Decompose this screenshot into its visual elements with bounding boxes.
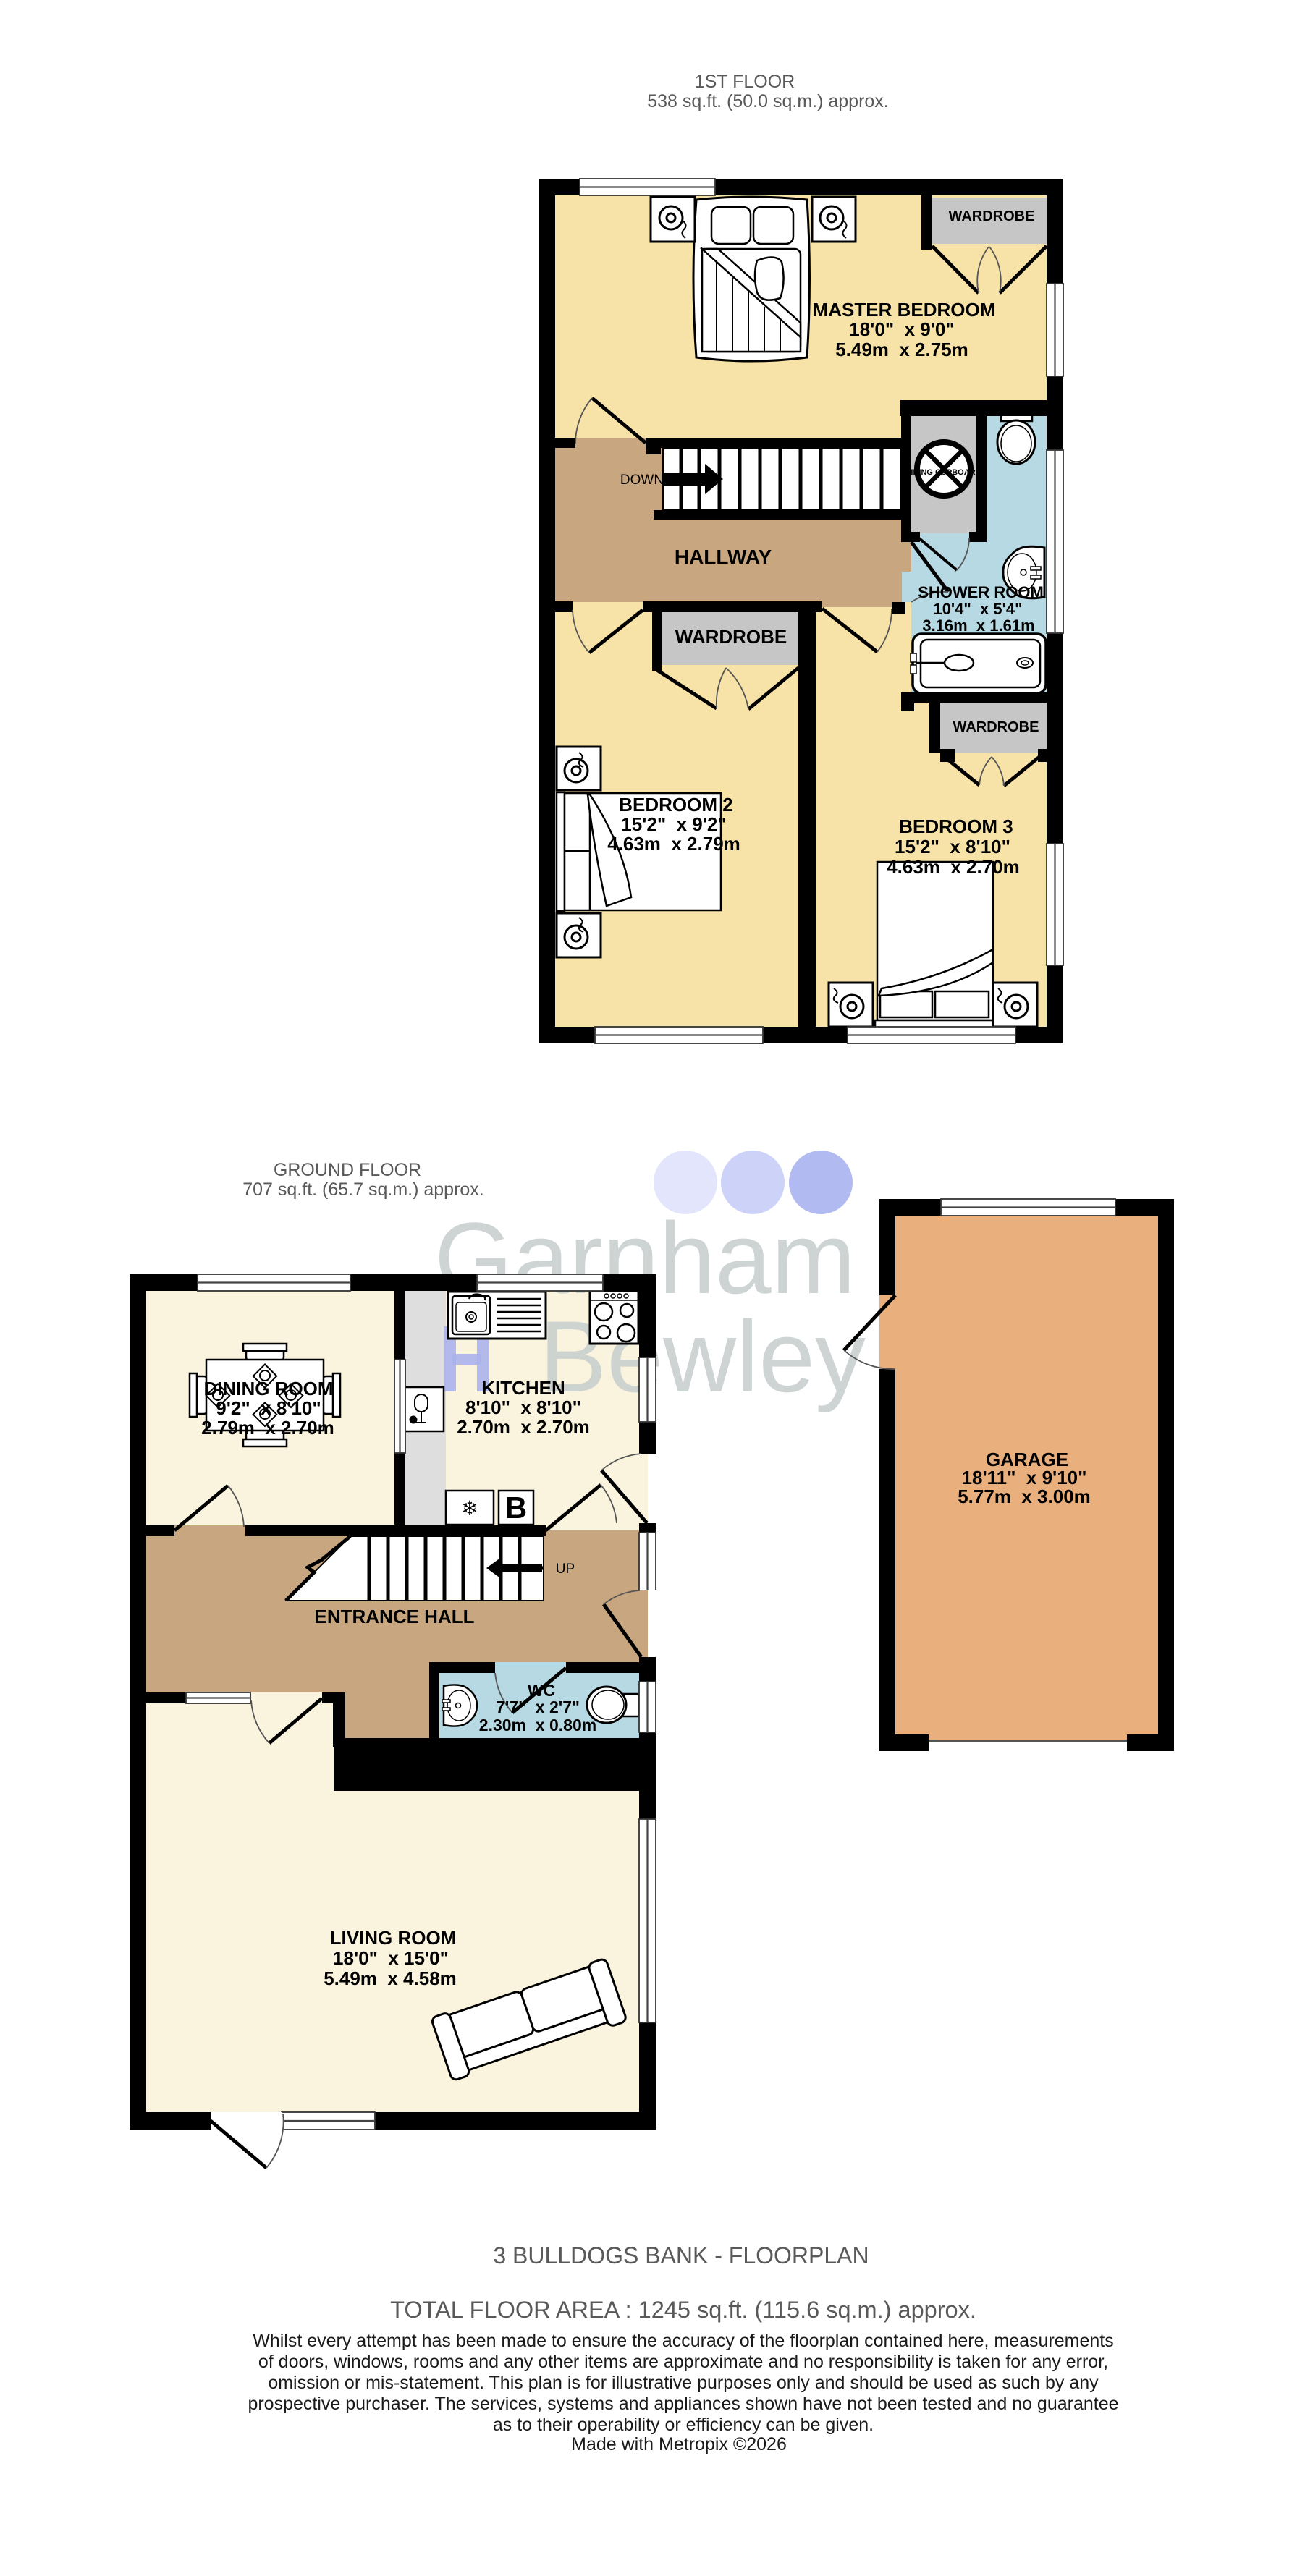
svg-text:as to their operability or eff: as to their operability or efficiency ca…: [493, 2415, 874, 2435]
svg-text:HALLWAY: HALLWAY: [675, 546, 772, 568]
svg-text:TOTAL FLOOR AREA : 1245 sq.ft.: TOTAL FLOOR AREA : 1245 sq.ft. (115.6 sq…: [390, 2297, 976, 2323]
svg-text:2.70m x 2.70m: 2.70m x 2.70m: [457, 1416, 590, 1438]
svg-text:1ST FLOOR: 1ST FLOOR: [695, 72, 795, 92]
svg-text:5.77m x 3.00m: 5.77m x 3.00m: [958, 1486, 1091, 1507]
svg-text:B: B: [505, 1491, 527, 1525]
svg-text:WARDROBE: WARDROBE: [949, 208, 1035, 224]
svg-text:5.49m x 2.75m: 5.49m x 2.75m: [835, 339, 968, 360]
svg-text:8'10" x 8'10": 8'10" x 8'10": [465, 1397, 581, 1418]
svg-text:of doors, windows, rooms and a: of doors, windows, rooms and any other i…: [258, 2352, 1108, 2372]
svg-text:3.16m x 1.61m: 3.16m x 1.61m: [922, 617, 1034, 635]
svg-text:AIRING CUPBOARD: AIRING CUPBOARD: [905, 468, 981, 477]
svg-text:DOWN: DOWN: [620, 473, 664, 488]
svg-text:4.63m x 2.79m: 4.63m x 2.79m: [607, 833, 740, 855]
svg-text:DINING ROOM: DINING ROOM: [203, 1378, 333, 1399]
svg-text:Made with Metropix ©2026: Made with Metropix ©2026: [571, 2434, 787, 2454]
svg-text:UP: UP: [556, 1562, 575, 1577]
svg-text:MASTER BEDROOM: MASTER BEDROOM: [813, 299, 996, 321]
svg-text:ENTRANCE HALL: ENTRANCE HALL: [315, 1606, 475, 1627]
svg-text:18'0" x 9'0": 18'0" x 9'0": [849, 318, 954, 340]
svg-text:KITCHEN: KITCHEN: [481, 1377, 565, 1399]
svg-text:2.79m x 2.70m: 2.79m x 2.70m: [201, 1417, 334, 1439]
svg-text:707 sq.ft. (65.7 sq.m.) approx: 707 sq.ft. (65.7 sq.m.) approx.: [242, 1179, 484, 1200]
svg-text:15'2" x 9'2": 15'2" x 9'2": [621, 813, 726, 835]
svg-text:538 sq.ft. (50.0 sq.m.) approx: 538 sq.ft. (50.0 sq.m.) approx.: [647, 91, 889, 111]
svg-text:WARDROBE: WARDROBE: [953, 719, 1039, 735]
svg-text:❄: ❄: [461, 1497, 478, 1520]
svg-text:7'7" x 2'7": 7'7" x 2'7": [496, 1698, 580, 1716]
svg-text:10'4" x 5'4": 10'4" x 5'4": [933, 600, 1022, 618]
svg-text:LIVING ROOM: LIVING ROOM: [330, 1927, 457, 1949]
svg-text:15'2" x 8'10": 15'2" x 8'10": [895, 836, 1010, 857]
svg-text:omission or mis-statement. Thi: omission or mis-statement. This plan is …: [268, 2373, 1099, 2393]
svg-text:5.49m x 4.58m: 5.49m x 4.58m: [324, 1967, 457, 1989]
svg-text:prospective purchaser. The ser: prospective purchaser. The services, sys…: [248, 2394, 1118, 2414]
svg-text:WARDROBE: WARDROBE: [675, 626, 787, 648]
svg-text:GROUND FLOOR: GROUND FLOOR: [274, 1160, 421, 1180]
svg-text:18'0" x 15'0": 18'0" x 15'0": [333, 1947, 449, 1969]
svg-text:4.63m x 2.70m: 4.63m x 2.70m: [887, 856, 1020, 878]
svg-text:BEDROOM 3: BEDROOM 3: [899, 815, 1013, 837]
svg-text:Bewley: Bewley: [539, 1300, 866, 1413]
svg-text:SHOWER ROOM: SHOWER ROOM: [918, 583, 1044, 601]
svg-text:3 BULLDOGS BANK - FLOORPLAN: 3 BULLDOGS BANK - FLOORPLAN: [493, 2242, 869, 2268]
svg-text:BEDROOM 2: BEDROOM 2: [619, 794, 732, 815]
svg-text:2.30m x 0.80m: 2.30m x 0.80m: [479, 1716, 596, 1734]
svg-text:Whilst every attempt has been: Whilst every attempt has been made to en…: [253, 2331, 1114, 2351]
svg-text:9'2" x 8'10": 9'2" x 8'10": [216, 1397, 321, 1419]
